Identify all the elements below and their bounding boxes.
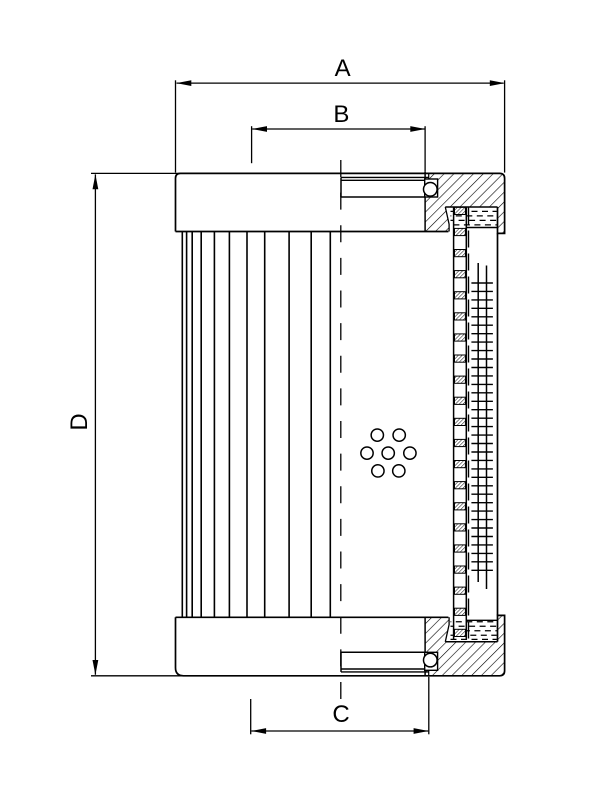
- svg-text:C: C: [332, 701, 349, 728]
- svg-text:A: A: [335, 55, 351, 82]
- svg-text:D: D: [66, 413, 93, 430]
- svg-text:B: B: [333, 101, 349, 128]
